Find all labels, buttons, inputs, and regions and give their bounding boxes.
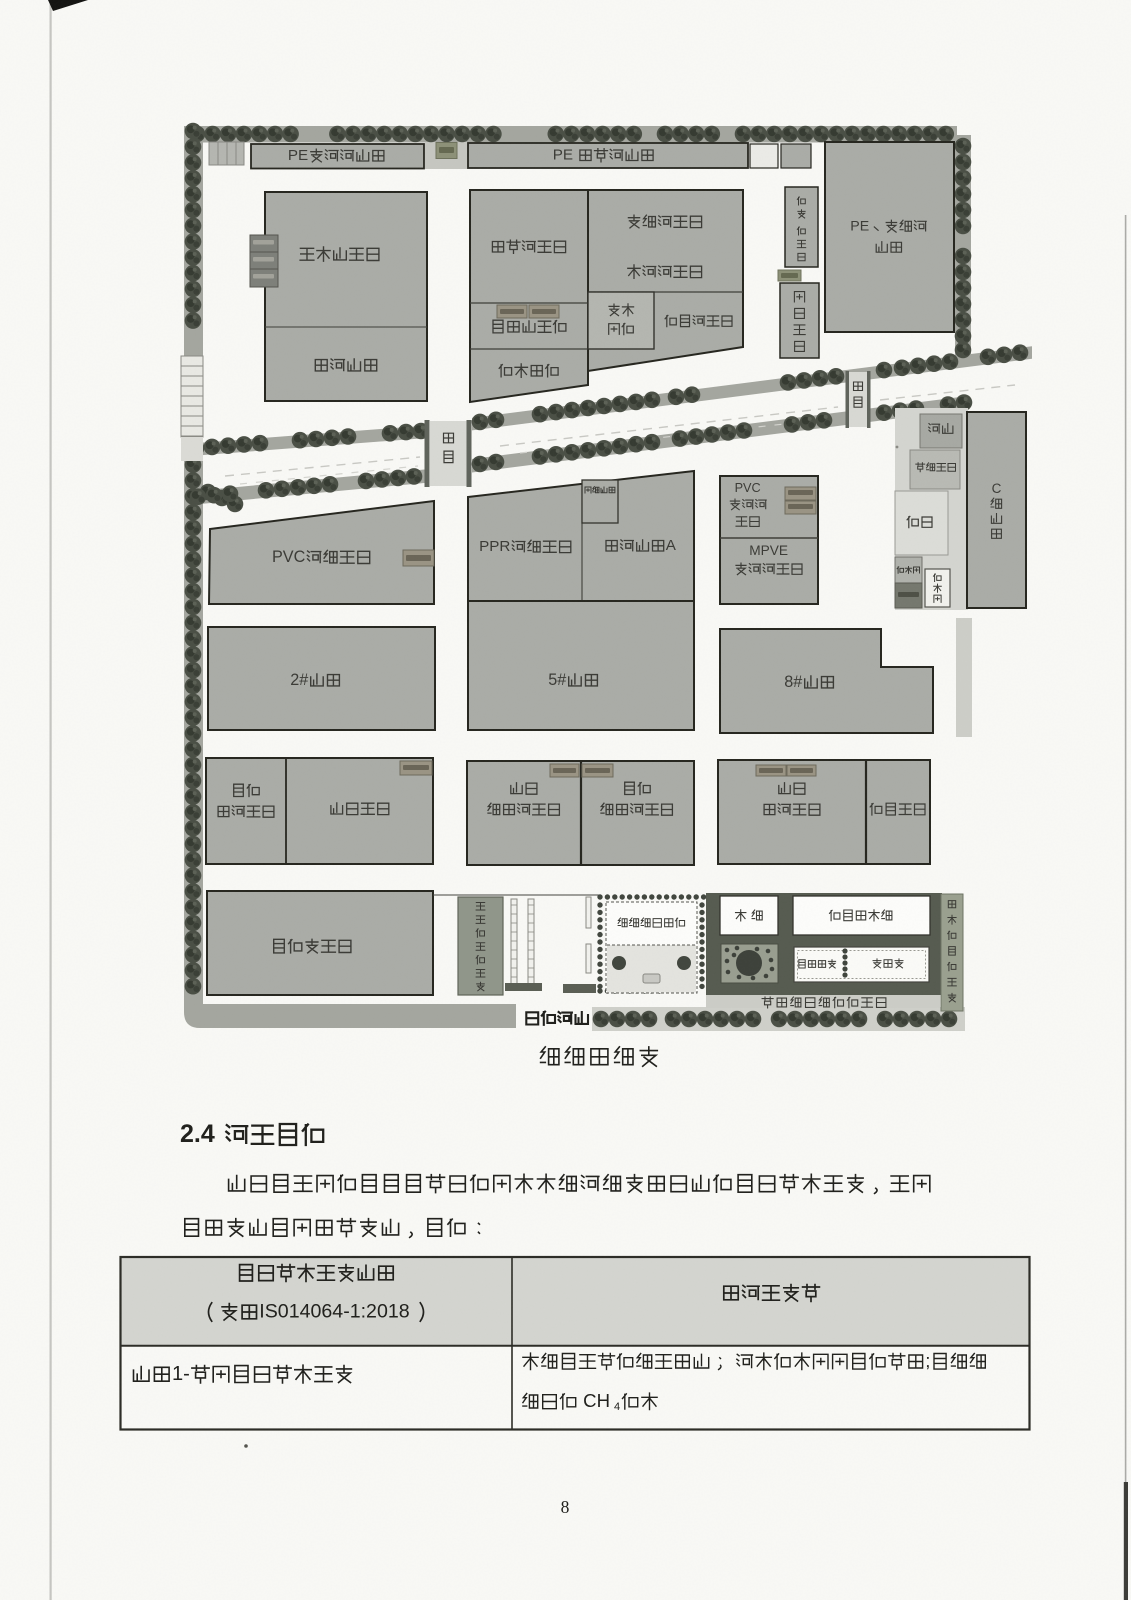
svg-text:8: 8 xyxy=(561,1497,570,1517)
